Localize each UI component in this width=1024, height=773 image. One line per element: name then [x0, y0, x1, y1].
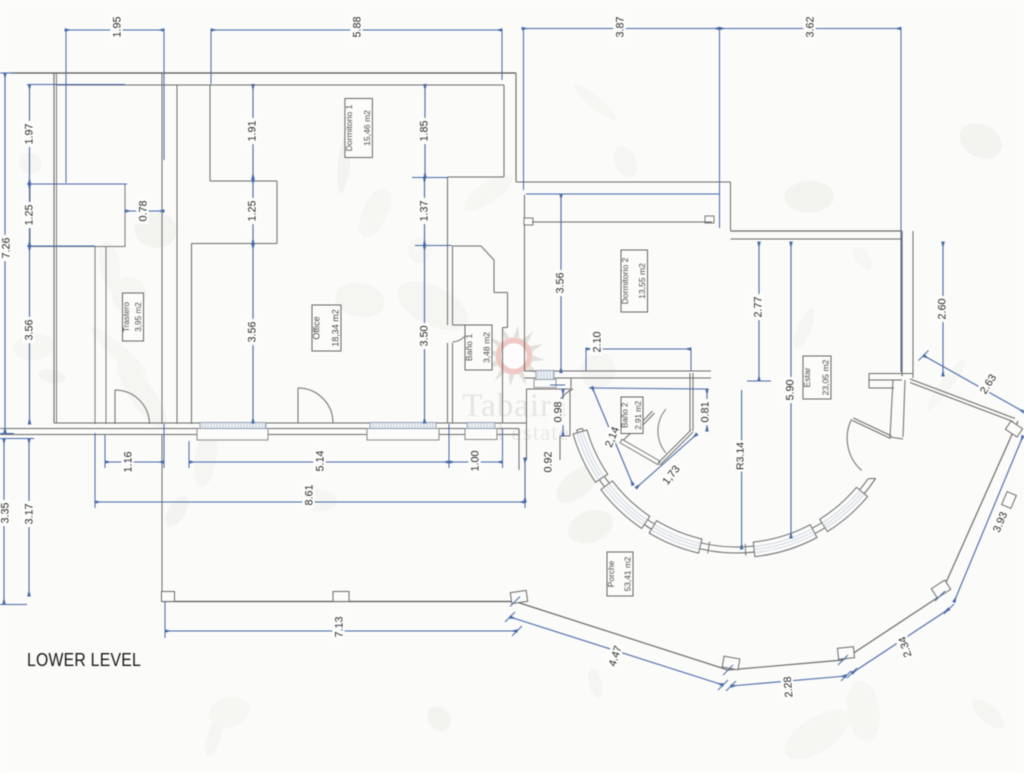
svg-text:1.37: 1.37 [419, 200, 431, 221]
svg-text:2.60: 2.60 [937, 298, 949, 319]
svg-text:Dormitorio 2: Dormitorio 2 [620, 257, 630, 304]
svg-text:15,46 m2: 15,46 m2 [362, 110, 372, 146]
svg-text:0.92: 0.92 [543, 451, 555, 472]
svg-text:1.16: 1.16 [123, 451, 135, 472]
svg-text:1.97: 1.97 [24, 123, 36, 144]
svg-text:3.50: 3.50 [419, 325, 431, 346]
svg-text:23,05 m2: 23,05 m2 [821, 359, 831, 395]
svg-text:53,41 m2: 53,41 m2 [623, 556, 633, 591]
svg-text:3.17: 3.17 [24, 503, 36, 524]
svg-text:0.78: 0.78 [138, 200, 150, 221]
svg-text:8.61: 8.61 [304, 484, 316, 505]
svg-text:18,34 m2: 18,34 m2 [331, 309, 341, 347]
svg-text:0.98: 0.98 [553, 401, 565, 422]
svg-text:7.26: 7.26 [1, 237, 13, 258]
svg-text:3,95 m2: 3,95 m2 [134, 302, 143, 332]
svg-text:3.87: 3.87 [615, 16, 627, 37]
svg-text:Porche: Porche [606, 560, 616, 587]
svg-text:Trastero: Trastero [122, 301, 131, 332]
svg-text:3,48 m2: 3,48 m2 [482, 332, 492, 363]
svg-text:2.77: 2.77 [753, 296, 765, 317]
svg-text:1.85: 1.85 [419, 120, 431, 141]
svg-text:3.56: 3.56 [24, 319, 36, 340]
svg-text:7.13: 7.13 [334, 616, 346, 637]
svg-text:3.56: 3.56 [555, 272, 567, 293]
svg-text:2.10: 2.10 [592, 331, 604, 352]
svg-text:5.14: 5.14 [315, 450, 327, 471]
svg-text:Estar: Estar [802, 367, 812, 387]
svg-text:2,91 m2: 2,91 m2 [634, 400, 643, 429]
svg-text:LOWER LEVEL: LOWER LEVEL [27, 649, 141, 670]
svg-text:0.81: 0.81 [700, 401, 712, 422]
svg-text:Baño 1: Baño 1 [464, 334, 474, 361]
svg-text:3.56: 3.56 [247, 321, 259, 342]
svg-text:R3.14: R3.14 [735, 442, 747, 470]
svg-text:13,55 m2: 13,55 m2 [637, 263, 647, 299]
svg-text:2.28: 2.28 [782, 676, 796, 698]
svg-text:Dormitorio 1: Dormitorio 1 [344, 104, 354, 151]
svg-text:1.00: 1.00 [470, 450, 482, 471]
svg-text:1.25: 1.25 [24, 204, 36, 225]
svg-text:1.25: 1.25 [247, 200, 259, 221]
svg-text:1.91: 1.91 [247, 120, 259, 141]
svg-text:5.90: 5.90 [785, 379, 797, 400]
svg-text:3.62: 3.62 [805, 16, 817, 37]
svg-text:Office: Office [311, 316, 321, 339]
svg-text:1.95: 1.95 [112, 16, 124, 37]
svg-text:3.35: 3.35 [0, 502, 12, 523]
svg-text:Baño 2: Baño 2 [621, 402, 630, 428]
svg-text:5.88: 5.88 [352, 16, 364, 37]
